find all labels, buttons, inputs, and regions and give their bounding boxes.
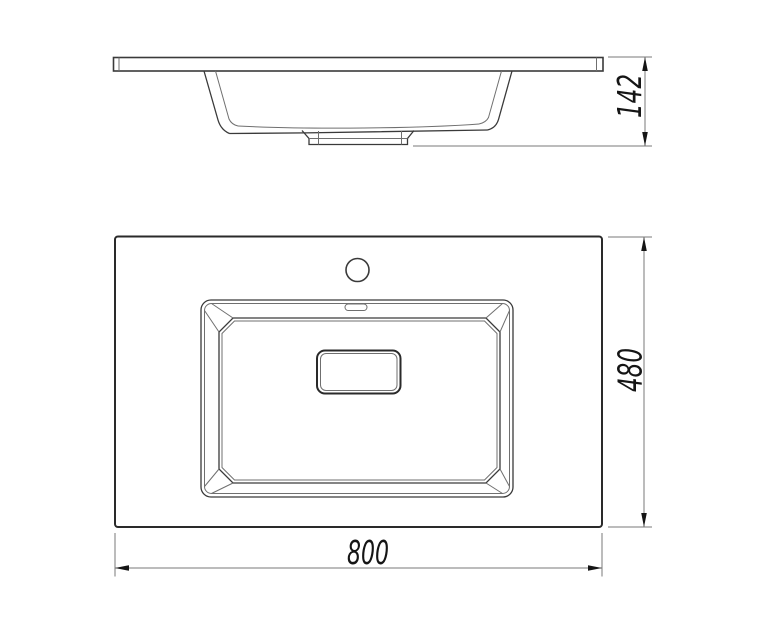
dimension-plan-depth: 480 (608, 237, 652, 527)
dimension-plan-width: 800 (115, 533, 602, 577)
side-bowl-left-outer-wall (204, 71, 230, 134)
dim-480-label: 480 (611, 348, 650, 392)
basin-corner-bevels (205, 304, 510, 494)
side-bowl-right-inner-wall (479, 71, 502, 124)
side-bowl-interior-bottom (238, 124, 479, 128)
plan-view: 480 800 (115, 237, 652, 577)
side-bowl-right-outer-wall (488, 71, 513, 130)
basin-floor-outer (219, 318, 500, 483)
drawing-canvas: 142 (0, 0, 770, 624)
dim-142-label: 142 (610, 74, 649, 118)
bevel-top-left-a (212, 304, 234, 319)
side-bowl-left-inner-wall (216, 71, 239, 126)
basin-rim-inner (205, 304, 510, 494)
bevel-top-left-b (205, 311, 220, 333)
dim-800-arrow-left-icon (115, 565, 129, 571)
bevel-bottom-left-a (205, 469, 220, 487)
dim-480-arrow-up-icon (641, 237, 647, 251)
tap-hole (346, 259, 369, 282)
side-bowl-exterior-bottom (230, 130, 488, 134)
drain-hole-inner (321, 354, 398, 391)
dim-142-arrow-up-icon (642, 57, 648, 71)
bevel-bottom-left-b (212, 483, 234, 494)
bevel-bottom-right-b (486, 483, 503, 494)
drain-hole-outer (317, 351, 401, 394)
overflow-slot (345, 304, 367, 311)
dim-800-label: 800 (347, 533, 389, 572)
basin-floor-inner (222, 321, 497, 480)
side-rim-slab (114, 58, 604, 72)
dim-142-arrow-down-icon (642, 132, 648, 146)
technical-drawing-sheet: 142 (0, 0, 770, 624)
side-view: 142 (114, 57, 653, 146)
basin-rim-outer (201, 300, 513, 497)
bevel-top-right-a (486, 304, 503, 319)
bevel-bottom-right-a (500, 469, 510, 487)
bevel-top-right-b (500, 311, 510, 333)
dim-800-arrow-right-icon (588, 565, 602, 571)
dim-480-arrow-down-icon (641, 513, 647, 527)
